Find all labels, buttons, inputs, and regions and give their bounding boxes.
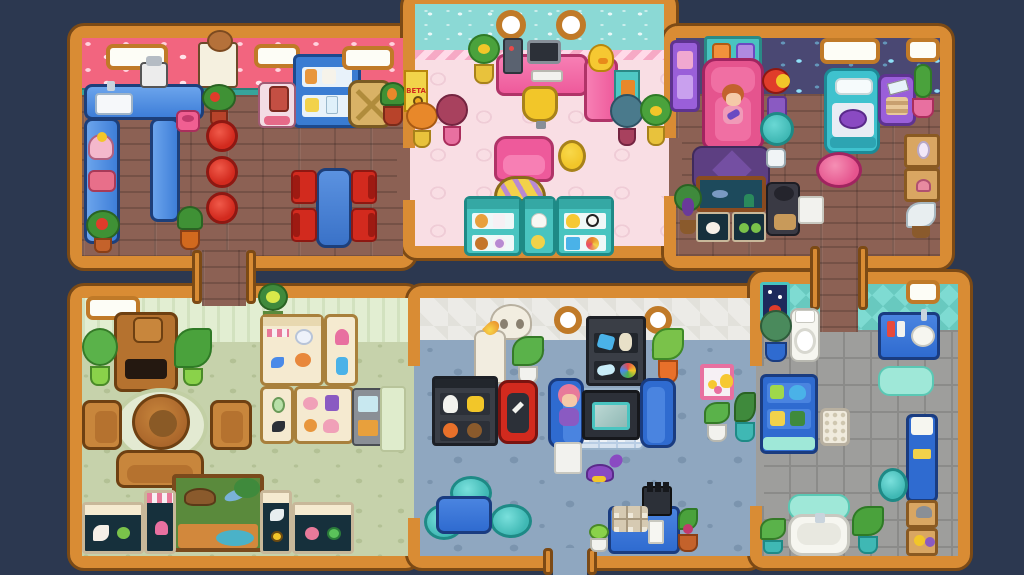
mineral-shelf[interactable] <box>586 316 646 386</box>
egg-green <box>272 397 285 413</box>
den-wallpaper <box>420 298 750 340</box>
plant-white-spiky[interactable] <box>904 202 940 240</box>
laundry-basket[interactable] <box>820 408 850 446</box>
pot <box>647 126 665 146</box>
gingham-cloth <box>612 506 648 532</box>
pot <box>858 536 878 554</box>
seat <box>503 155 545 175</box>
butterfly-dark <box>272 421 285 432</box>
door-kitchen-lounge <box>202 250 246 306</box>
tv-screen <box>592 402 630 430</box>
pouf-teal[interactable] <box>490 504 532 538</box>
case-lid <box>435 379 495 388</box>
bee-yellow <box>271 531 283 542</box>
bug-case[interactable] <box>82 502 144 554</box>
curio-shelf[interactable] <box>294 386 354 444</box>
window[interactable] <box>906 280 940 304</box>
toy-case-teal[interactable] <box>464 196 522 256</box>
beetle-green <box>327 527 341 540</box>
bath-mat-mint <box>878 366 934 396</box>
body <box>559 408 579 426</box>
star-plush <box>467 396 484 412</box>
cat-purple[interactable] <box>582 456 624 488</box>
chair-red[interactable] <box>291 170 317 204</box>
toilet[interactable] <box>790 308 820 362</box>
bug-green <box>751 223 761 233</box>
step-stool[interactable] <box>554 442 582 474</box>
mushroom-doll <box>335 329 349 345</box>
chair-back <box>293 213 300 237</box>
shelf-lid <box>263 317 321 326</box>
large-terrarium[interactable] <box>172 474 264 552</box>
food-milk <box>326 96 338 114</box>
chair-pad <box>507 393 529 433</box>
chair-base <box>536 121 546 129</box>
pod <box>655 482 661 492</box>
cat-collar <box>592 476 606 482</box>
pot <box>912 226 930 238</box>
bottle-blue <box>336 357 348 375</box>
pouf-pink[interactable] <box>816 152 862 188</box>
toy-case-teal[interactable] <box>522 196 556 256</box>
leaves <box>177 206 203 230</box>
tv-table[interactable] <box>582 390 640 440</box>
table-center <box>149 410 177 437</box>
piano-brown[interactable] <box>114 312 178 392</box>
foliage <box>234 478 260 498</box>
bottle-red <box>887 321 895 337</box>
plant-pot-green[interactable] <box>174 328 212 390</box>
leaves <box>174 328 212 368</box>
pc-tower[interactable] <box>503 38 523 74</box>
frog-green <box>117 527 130 539</box>
machine <box>269 86 289 112</box>
display-stand-wood[interactable] <box>904 168 940 202</box>
pot <box>680 220 696 234</box>
pot <box>618 128 636 146</box>
cupcake[interactable] <box>88 134 114 160</box>
chair-back <box>368 213 375 237</box>
duck-poster[interactable] <box>700 364 734 400</box>
tub-inner <box>797 523 841 545</box>
sink <box>95 93 133 115</box>
monitor[interactable] <box>527 40 561 64</box>
gacha-machine[interactable] <box>670 40 700 112</box>
fox-plush <box>295 353 311 367</box>
banana-plant[interactable] <box>640 94 672 150</box>
face <box>726 93 741 106</box>
piano-bench <box>133 317 163 343</box>
eye <box>500 319 508 329</box>
blanket <box>886 97 908 115</box>
banana <box>650 106 662 116</box>
keyboard[interactable] <box>531 70 563 82</box>
chair-back <box>368 175 375 199</box>
flower-pot-orange[interactable] <box>406 102 438 152</box>
bear-plush <box>467 423 482 438</box>
strawberry <box>210 92 220 102</box>
lemon-toy <box>531 235 545 249</box>
bottle-white <box>897 321 905 337</box>
bug-green <box>739 223 749 233</box>
oven-tray <box>358 420 378 436</box>
eggplant <box>682 198 694 216</box>
pot <box>443 126 461 146</box>
pot <box>90 366 110 386</box>
pot <box>180 230 200 250</box>
star-dot <box>768 290 772 294</box>
wall-corridor-left-b <box>246 250 256 304</box>
mug-top <box>182 115 194 122</box>
toy-case-teal[interactable] <box>556 196 614 256</box>
teddy-bear <box>475 214 488 228</box>
face <box>266 291 280 303</box>
bug-case-tall[interactable] <box>144 490 176 554</box>
leaves <box>760 310 792 342</box>
case-top <box>147 493 173 503</box>
coffee-maker-stand[interactable] <box>258 82 296 128</box>
stool-teal[interactable] <box>878 468 908 502</box>
window[interactable] <box>906 38 940 62</box>
water-bowl[interactable] <box>766 148 786 168</box>
flower-yellow <box>914 535 925 546</box>
massage-table-blue[interactable] <box>906 414 938 502</box>
case-top <box>85 505 141 515</box>
star-dot <box>778 295 782 299</box>
cactus-plant-pink-pot[interactable] <box>906 64 940 122</box>
case-lid <box>467 199 519 209</box>
duck-blue <box>789 385 806 400</box>
seat <box>95 411 117 443</box>
pod <box>663 482 669 492</box>
piano-keys <box>125 359 167 379</box>
sink-counter[interactable] <box>878 312 940 360</box>
case-top <box>263 493 289 503</box>
round-table-wood[interactable] <box>132 394 190 450</box>
helmet-item <box>916 506 932 518</box>
eggplant-plant[interactable] <box>674 184 702 238</box>
pot <box>413 130 431 148</box>
chair-red[interactable] <box>291 208 317 242</box>
faucet <box>107 81 115 91</box>
seat <box>221 411 243 443</box>
floor-mat-white[interactable] <box>798 196 824 224</box>
pond <box>216 530 254 546</box>
leaves <box>704 402 730 424</box>
case-lid <box>559 199 611 209</box>
bed-teal[interactable] <box>824 68 880 154</box>
wall-corridor-right-a <box>810 246 820 310</box>
banana <box>478 44 490 54</box>
door-bedroom-bathroom <box>820 246 858 332</box>
bench-blue[interactable] <box>436 496 492 534</box>
pot <box>383 106 403 126</box>
chair-red[interactable] <box>351 170 377 204</box>
door-kitchen-study <box>397 148 421 200</box>
flower-pot-maroon[interactable] <box>436 94 468 150</box>
fish <box>712 190 728 198</box>
egg-item <box>917 141 930 159</box>
changing-unit-blue[interactable] <box>760 374 818 454</box>
pot <box>735 422 755 442</box>
tomato <box>96 218 108 230</box>
plant-pot-teal[interactable] <box>758 518 788 556</box>
flower-purple <box>925 537 935 547</box>
toilet-seat <box>794 328 816 354</box>
plush-display-case[interactable] <box>432 376 498 446</box>
water-plant <box>744 194 754 207</box>
curio-shelf[interactable] <box>260 314 324 386</box>
oven-window <box>358 396 378 412</box>
plant-pot-white[interactable] <box>510 336 546 386</box>
bug-case[interactable] <box>292 502 354 554</box>
rainbow-dish <box>620 363 636 378</box>
pot <box>763 540 783 554</box>
flower-white <box>93 525 109 541</box>
power-led <box>509 46 514 51</box>
plant-pot-green[interactable] <box>82 328 118 390</box>
seat <box>647 387 665 443</box>
pot <box>765 342 787 362</box>
stool-red[interactable] <box>206 192 238 224</box>
plant-dark-leaf[interactable] <box>610 94 644 150</box>
soap-green <box>770 385 784 399</box>
face <box>562 394 577 407</box>
case-lid <box>525 199 553 209</box>
stool-red[interactable] <box>206 156 238 188</box>
pillow <box>835 78 873 95</box>
bug-case-tall[interactable] <box>260 490 292 554</box>
plate-shell <box>295 329 313 345</box>
leaves <box>852 506 884 536</box>
plant-pot-large[interactable] <box>852 506 884 556</box>
plant-pot-white[interactable] <box>586 524 612 554</box>
sofa-blue[interactable] <box>640 378 676 448</box>
sheet <box>911 417 933 435</box>
pot <box>590 538 608 552</box>
beet <box>683 524 693 534</box>
orange-fruit <box>304 419 317 432</box>
wall-corridor-right-b <box>858 246 868 310</box>
shell-white <box>706 222 720 234</box>
leaves <box>512 336 544 366</box>
beach-ball <box>586 237 599 250</box>
hamster-cage[interactable] <box>198 42 238 88</box>
meat-plate[interactable] <box>88 170 116 192</box>
hamster <box>207 30 233 52</box>
gaming-chair[interactable] <box>498 380 538 444</box>
armchair-wood[interactable] <box>82 400 122 450</box>
display-stand-wood[interactable] <box>906 500 938 528</box>
toilet-tank <box>795 310 815 323</box>
child-character[interactable] <box>718 84 748 132</box>
shell-item <box>916 179 931 192</box>
door-lounge-den <box>404 366 424 518</box>
leaves <box>906 202 936 228</box>
carrot-plant[interactable] <box>174 206 206 252</box>
leaves <box>610 94 644 128</box>
porthole-window[interactable] <box>556 10 586 40</box>
duckling <box>714 386 722 394</box>
tomato-plant[interactable] <box>86 210 120 254</box>
machine-top <box>146 56 162 66</box>
porthole-window[interactable] <box>554 306 582 334</box>
leaves <box>82 328 118 366</box>
bloom <box>436 94 468 126</box>
gacha-window <box>677 51 693 69</box>
curio-shelf[interactable] <box>260 386 294 444</box>
curio-shelf[interactable] <box>324 314 358 386</box>
awning <box>267 329 289 337</box>
duck-mama <box>720 374 733 388</box>
rubber-duck[interactable] <box>588 44 614 72</box>
pot <box>94 238 112 253</box>
side-table-teal[interactable] <box>760 112 794 146</box>
armchair-wood[interactable] <box>210 400 252 450</box>
bed-footer <box>830 137 876 148</box>
sleeping-cat <box>839 109 867 129</box>
pot <box>474 64 494 84</box>
leaves <box>652 328 684 360</box>
shop-toy <box>566 237 580 250</box>
counter-pale-green[interactable] <box>380 386 406 452</box>
stool-yellow[interactable] <box>558 140 586 172</box>
espresso-machine[interactable] <box>140 62 168 88</box>
lizard <box>184 488 216 506</box>
pot <box>707 424 727 442</box>
window[interactable] <box>820 38 880 64</box>
base <box>264 116 290 125</box>
window[interactable] <box>342 46 394 70</box>
office-chair-yellow[interactable] <box>522 86 558 122</box>
plant-pot-teal-tall[interactable] <box>732 392 758 444</box>
bunny-plush <box>443 395 458 413</box>
duck-toy <box>566 214 580 228</box>
basin <box>911 325 935 347</box>
beet-plant[interactable] <box>674 508 702 554</box>
towel-yellow <box>770 411 785 426</box>
food-bread <box>322 69 336 84</box>
fox-plush <box>443 423 458 438</box>
cat-dark <box>774 186 794 201</box>
door-den-exit <box>553 548 587 575</box>
terrarium-bugs[interactable] <box>732 212 766 242</box>
butterfly-blue <box>271 357 284 368</box>
bloom-b <box>776 74 790 88</box>
basket-green <box>790 411 805 426</box>
leaves <box>760 518 786 540</box>
mug-pink[interactable] <box>176 110 200 132</box>
pot <box>183 368 203 386</box>
faucet <box>815 513 825 523</box>
soda-grape <box>325 395 339 411</box>
pig-plush <box>303 397 318 410</box>
stool-red[interactable] <box>206 120 238 152</box>
wall-exit-a <box>543 548 553 575</box>
jelly-rose <box>305 527 319 540</box>
girl-character[interactable] <box>554 384 584 430</box>
bloom <box>406 102 438 130</box>
chair-back <box>293 175 300 199</box>
gacha-slot <box>677 75 693 99</box>
eye <box>516 319 524 329</box>
game-house-map: BETA <box>0 0 1024 575</box>
food-carrot <box>305 69 317 84</box>
display-stand-wood[interactable] <box>904 134 940 168</box>
dining-table-blue[interactable] <box>316 168 352 248</box>
gift-bag <box>493 214 505 228</box>
swan-toy <box>531 213 547 228</box>
pot <box>912 98 934 118</box>
leaves <box>734 392 756 422</box>
plant-pot-blue[interactable] <box>760 310 792 364</box>
butterfly-white <box>270 509 284 521</box>
case-top <box>295 505 351 515</box>
display-stand-wood[interactable] <box>906 528 938 556</box>
strap <box>913 449 931 459</box>
pod <box>647 482 653 492</box>
ball-purple <box>493 237 506 250</box>
faucet <box>921 309 927 321</box>
jelly-pink <box>155 521 168 535</box>
aquarium[interactable] <box>696 176 766 212</box>
carrot <box>387 88 397 100</box>
soccer-ball <box>586 214 599 227</box>
cactus <box>914 64 932 98</box>
chair-red[interactable] <box>351 208 377 242</box>
donut <box>475 237 488 250</box>
cherry <box>97 132 107 142</box>
jar <box>619 333 632 351</box>
wall-corridor-left-a <box>192 250 202 304</box>
pot <box>678 534 698 552</box>
teapot-pink <box>323 419 339 433</box>
plant-pot-white[interactable] <box>702 402 732 444</box>
bathtub[interactable] <box>788 514 850 556</box>
cat-tower[interactable] <box>766 182 800 236</box>
beak <box>598 58 608 64</box>
towel-white[interactable] <box>648 520 664 544</box>
cushion <box>774 214 796 230</box>
food-butter <box>305 98 319 112</box>
unit-mat <box>763 437 815 450</box>
